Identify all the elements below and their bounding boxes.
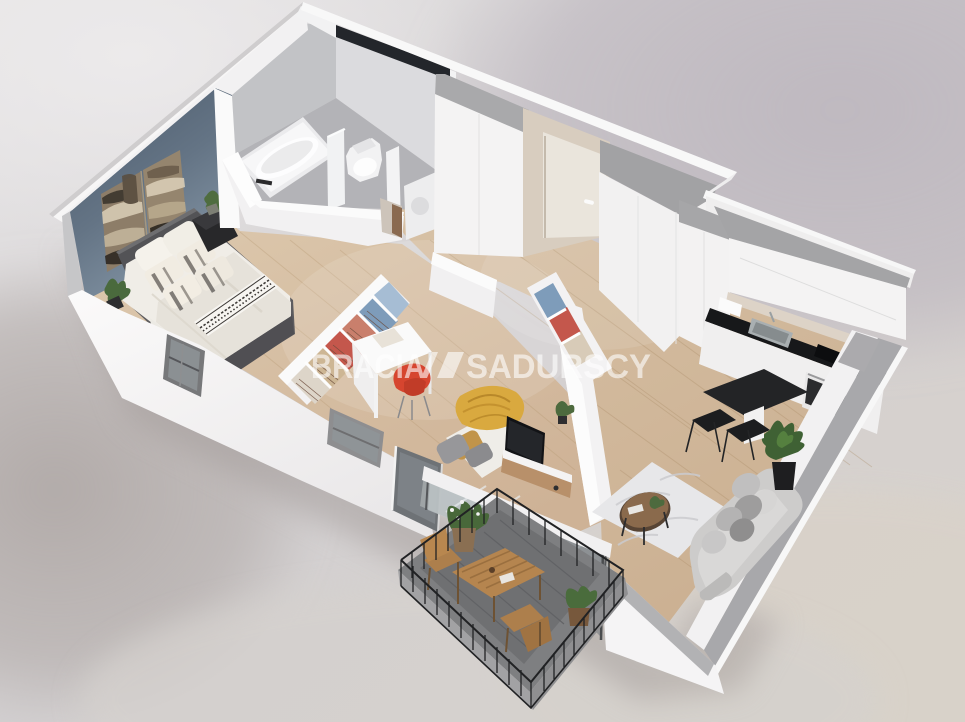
svg-text:SADURSCY: SADURSCY xyxy=(466,348,651,386)
svg-text:BRACIA: BRACIA xyxy=(311,348,425,386)
